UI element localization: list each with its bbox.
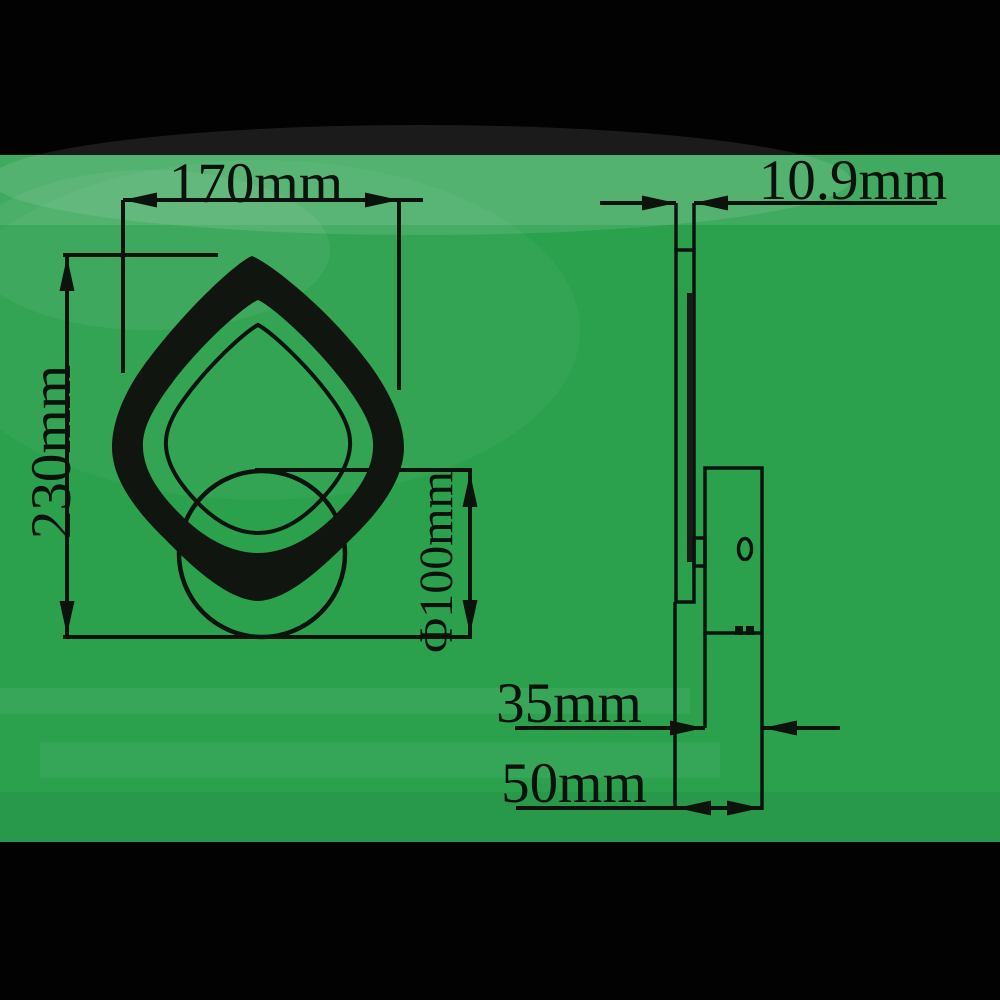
plate-thickness-label: 10.9mm: [759, 149, 947, 212]
total-depth-label: 50mm: [501, 752, 647, 815]
cable-mark-left: [735, 626, 743, 635]
canopy-depth-label: 35mm: [496, 672, 642, 735]
cable-mark-right: [746, 626, 754, 635]
mount-diameter-label: Φ100mm: [410, 471, 463, 653]
front-width-label: 170mm: [169, 152, 343, 215]
front-height-label: 230mm: [20, 365, 83, 539]
photo-canvas: 170mm 230mm Φ100mm: [0, 0, 1000, 1000]
dimension-drawing: 170mm 230mm Φ100mm: [0, 0, 1000, 1000]
paper-shadow-bottom: [0, 792, 1000, 842]
